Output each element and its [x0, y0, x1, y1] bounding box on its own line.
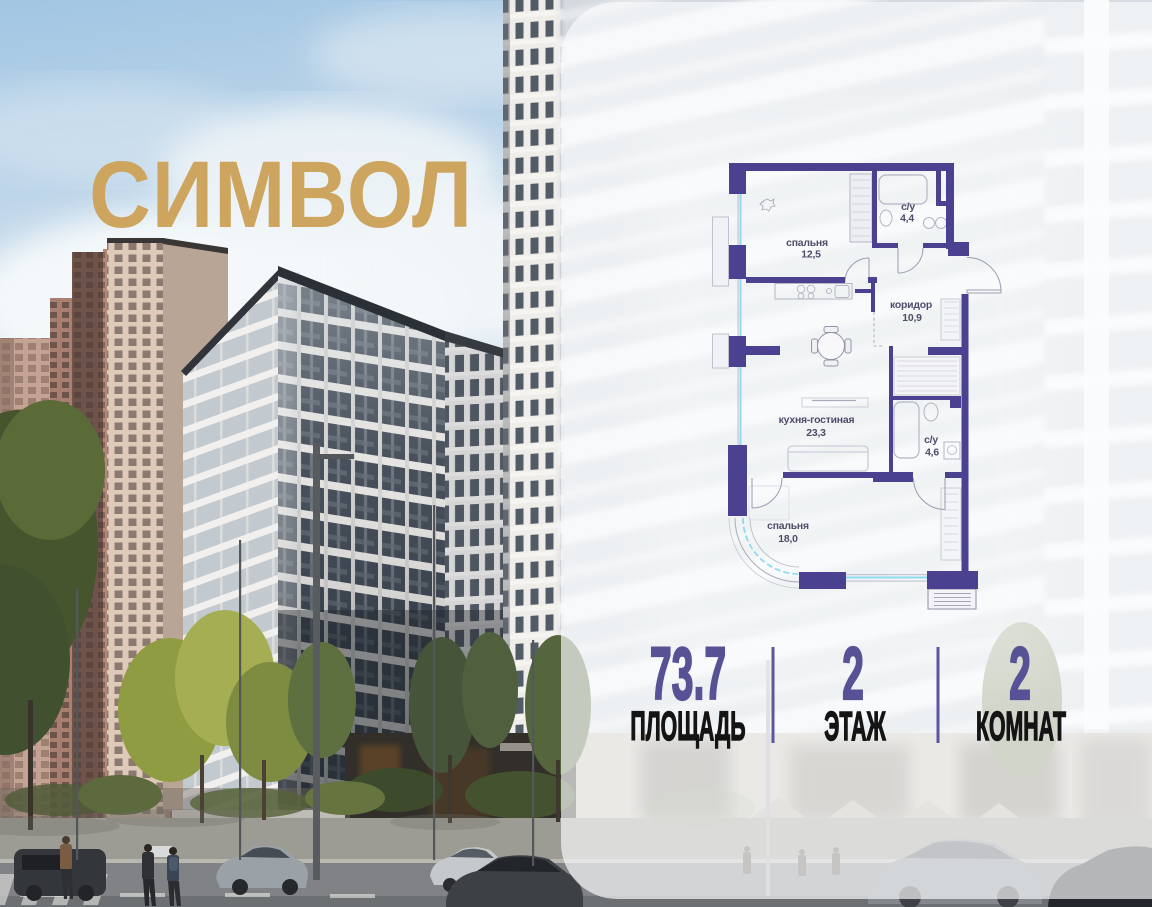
svg-text:18,0: 18,0: [778, 534, 798, 545]
svg-text:с/у: с/у: [901, 202, 915, 213]
svg-text:КОМНАТ: КОМНАТ: [976, 702, 1066, 748]
svg-text:4,4: 4,4: [900, 214, 914, 225]
svg-text:с/у: с/у: [924, 435, 938, 446]
svg-text:10,9: 10,9: [902, 313, 922, 324]
svg-text:4,6: 4,6: [925, 448, 939, 459]
svg-text:коридор: коридор: [890, 300, 932, 311]
svg-text:СИМВОЛ: СИМВОЛ: [89, 142, 473, 248]
svg-text:12,5: 12,5: [801, 250, 821, 261]
svg-text:спальня: спальня: [767, 521, 809, 532]
svg-text:23,3: 23,3: [806, 428, 826, 439]
svg-text:ЭТАЖ: ЭТАЖ: [824, 702, 886, 748]
svg-text:ПЛОЩАДЬ: ПЛОЩАДЬ: [630, 702, 745, 748]
svg-text:спальня: спальня: [786, 238, 828, 249]
svg-text:кухня-гостиная: кухня-гостиная: [779, 415, 855, 426]
